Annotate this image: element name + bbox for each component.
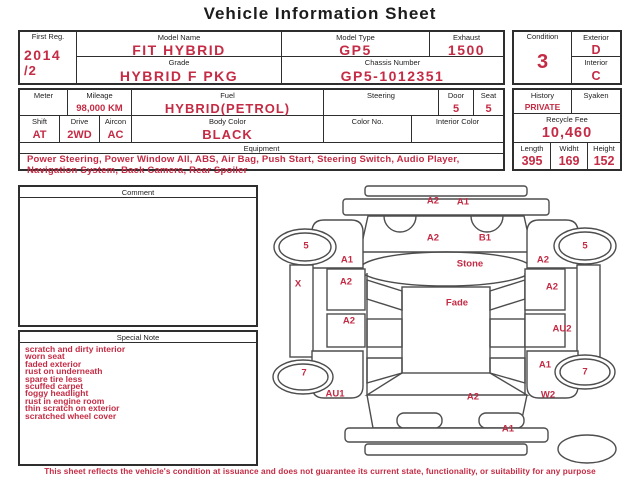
mileage-value: 98,000 KM <box>68 101 131 116</box>
shift-label: Shift <box>20 116 59 127</box>
damage-marker-a1: A1 <box>539 360 551 371</box>
page-title: Vehicle Information Sheet <box>0 4 640 24</box>
drive-label: Drive <box>60 116 99 127</box>
first-reg-year: 2014 <box>24 47 76 63</box>
special-note-label: Special Note <box>20 332 256 343</box>
chassis-number-label: Chassis Number <box>282 57 503 68</box>
damage-marker-x: X <box>295 279 301 290</box>
model-type-value: GP5 <box>282 43 430 57</box>
exhaust-value: 1500 <box>430 43 503 57</box>
length-label: Length <box>514 143 550 153</box>
condition-grade: 3 <box>514 41 571 83</box>
exterior-label: Exterior <box>572 32 620 43</box>
exterior-grade: D <box>572 43 620 57</box>
fuel-label: Fuel <box>132 90 323 101</box>
history-label: History <box>514 90 571 100</box>
damage-marker-a2: A2 <box>427 196 439 207</box>
damage-marker-a2: A2 <box>340 277 352 288</box>
meter-label: Meter <box>20 90 67 101</box>
damage-marker-a2: A2 <box>537 255 549 266</box>
damage-marker-7: 7 <box>582 367 587 378</box>
first-reg-label: First Reg. <box>20 32 76 41</box>
color-no-value <box>324 127 411 142</box>
car-outline-drawing <box>270 183 640 467</box>
syaken-label: Syaken <box>572 90 620 100</box>
length-value: 395 <box>514 153 550 169</box>
steering-value <box>324 101 438 116</box>
seat-value: 5 <box>474 101 503 116</box>
special-note-item: scratched wheel cover <box>25 413 251 420</box>
spec-table: Meter Mileage98,000 KM FuelHYBRID(PETROL… <box>18 88 505 171</box>
width-value: 169 <box>551 153 587 169</box>
aircon-label: Aircon <box>100 116 131 127</box>
damage-marker-5: 5 <box>582 241 587 252</box>
equipment-value: Power Steering, Power Window All, ABS, A… <box>20 154 503 177</box>
damage-marker-a2: A2 <box>467 392 479 403</box>
damage-marker-a2: A2 <box>427 233 439 244</box>
condition-box: Condition 3 Exterior D Interior C <box>512 30 622 85</box>
damage-marker-stone: Stone <box>457 259 483 270</box>
interior-color-label: Interior Color <box>412 116 503 127</box>
steering-label: Steering <box>324 90 438 101</box>
special-note-box: Special Note scratch and dirty interior … <box>18 330 258 466</box>
height-label: Height <box>588 143 620 153</box>
shift-value: AT <box>20 127 59 142</box>
vehicle-identity-table: First Reg. 2014 /2 Model Name FIT HYBRID… <box>18 30 505 85</box>
recycle-fee-label: Recycle Fee <box>514 114 620 124</box>
condition-label: Condition <box>514 32 571 41</box>
damage-marker-7: 7 <box>301 368 306 379</box>
meter-value <box>20 101 67 116</box>
damage-marker-a1: A1 <box>502 424 514 435</box>
recycle-fee-value: 10,460 <box>514 124 620 142</box>
special-note-list: scratch and dirty interior worn seat fad… <box>20 343 256 423</box>
condition-cell: Condition 3 <box>514 32 572 83</box>
interior-grade: C <box>572 68 620 83</box>
first-reg-cell: First Reg. 2014 /2 <box>20 32 77 83</box>
damage-marker-au1: AU1 <box>325 389 344 400</box>
aircon-value: AC <box>100 127 131 142</box>
history-fee-box: HistoryPRIVATE Syaken Recycle Fee 10,460… <box>512 88 622 171</box>
drive-value: 2WD <box>60 127 99 142</box>
model-type-label: Model Type <box>282 32 430 43</box>
damage-marker-fade: Fade <box>446 298 468 309</box>
door-value: 5 <box>439 101 473 116</box>
equipment-label: Equipment <box>20 143 503 154</box>
exhaust-label: Exhaust <box>430 32 503 43</box>
grade-label: Grade <box>77 57 282 68</box>
damage-marker-b1: B1 <box>479 233 491 244</box>
interior-label: Interior <box>572 57 620 68</box>
damage-marker-5: 5 <box>303 241 308 252</box>
damage-marker-au2: AU2 <box>552 324 571 335</box>
car-damage-diagram: A2A1A2B1StoneFade55A1A2XA2A2A2AU2A177AU1… <box>270 183 640 467</box>
damage-marker-w2: W2 <box>541 390 555 401</box>
seat-label: Seat <box>474 90 503 101</box>
body-color-value: BLACK <box>132 127 323 142</box>
body-color-label: Body Color <box>132 116 323 127</box>
comment-box: Comment <box>18 185 258 327</box>
first-reg-month: /2 <box>24 63 76 78</box>
height-value: 152 <box>588 153 620 169</box>
interior-color-value <box>412 127 503 142</box>
width-label: Widht <box>551 143 587 153</box>
damage-marker-a2: A2 <box>546 282 558 293</box>
vehicle-information-sheet: { "title": "Vehicle Information Sheet", … <box>0 0 640 480</box>
model-name-label: Model Name <box>77 32 282 43</box>
chassis-number-value: GP5-1012351 <box>282 68 503 83</box>
disclaimer-text: This sheet reflects the vehicle's condit… <box>0 467 640 476</box>
fuel-value: HYBRID(PETROL) <box>132 101 323 116</box>
damage-marker-a1: A1 <box>457 197 469 208</box>
damage-marker-a2: A2 <box>343 316 355 327</box>
grade-value: HYBRID F PKG <box>77 68 282 83</box>
syaken-value <box>572 100 620 113</box>
history-value: PRIVATE <box>514 100 571 113</box>
model-name-value: FIT HYBRID <box>77 43 282 57</box>
mileage-label: Mileage <box>68 90 131 101</box>
damage-marker-a1: A1 <box>341 255 353 266</box>
color-no-label: Color No. <box>324 116 411 127</box>
comment-label: Comment <box>20 187 256 198</box>
door-label: Door <box>439 90 473 101</box>
